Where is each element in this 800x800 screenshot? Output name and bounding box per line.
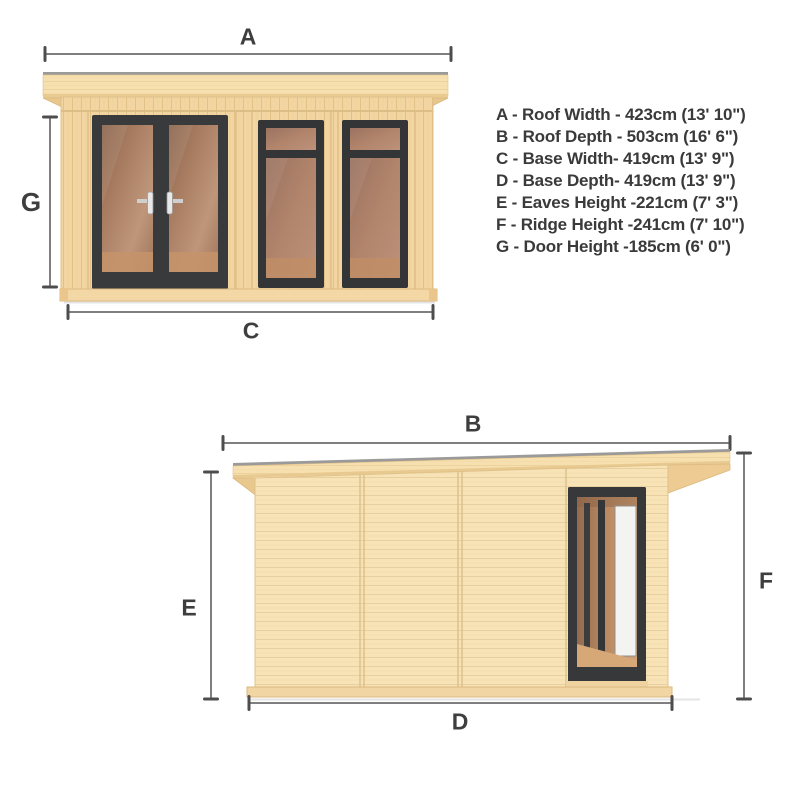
dim-label-G: G xyxy=(21,189,41,215)
dim-label-D: D xyxy=(452,711,469,734)
front-base xyxy=(60,289,437,303)
front-window-left xyxy=(258,120,324,288)
side-base xyxy=(247,687,700,700)
front-double-door xyxy=(92,115,228,289)
legend-line-ridge-height: F - Ridge Height -241cm (7' 10") xyxy=(496,214,796,236)
side-elevation-view xyxy=(205,437,751,710)
legend-line-door-height: G - Door Height -185cm (6' 0") xyxy=(496,236,796,258)
dimension-legend: A - Roof Width - 423cm (13' 10") B - Roo… xyxy=(496,104,796,258)
dim-label-F: F xyxy=(759,570,773,593)
legend-line-roof-depth: B - Roof Depth - 503cm (16' 6") xyxy=(496,126,796,148)
dim-label-C: C xyxy=(243,320,260,343)
side-glazed-door xyxy=(566,487,648,687)
front-window-right xyxy=(342,120,408,288)
product-dimension-diagram: A G C B E F D A - Roof Width - 423cm (13… xyxy=(0,0,800,800)
legend-line-eaves-height: E - Eaves Height -221cm (7' 3") xyxy=(496,192,796,214)
legend-line-base-depth: D - Base Depth- 419cm (13' 9") xyxy=(496,170,796,192)
dim-arrow-roof-depth-B xyxy=(223,437,730,450)
dim-arrow-door-height-G xyxy=(44,117,57,287)
dim-arrow-ridge-height-F xyxy=(738,453,751,699)
dim-label-E: E xyxy=(181,597,196,620)
legend-line-base-width: C - Base Width- 419cm (13' 9") xyxy=(496,148,796,170)
dim-label-B: B xyxy=(465,413,482,436)
legend-line-roof-width: A - Roof Width - 423cm (13' 10") xyxy=(496,104,796,126)
front-elevation-view xyxy=(43,48,451,319)
dim-arrow-eaves-height-E xyxy=(205,472,218,699)
dim-label-A: A xyxy=(240,26,257,49)
